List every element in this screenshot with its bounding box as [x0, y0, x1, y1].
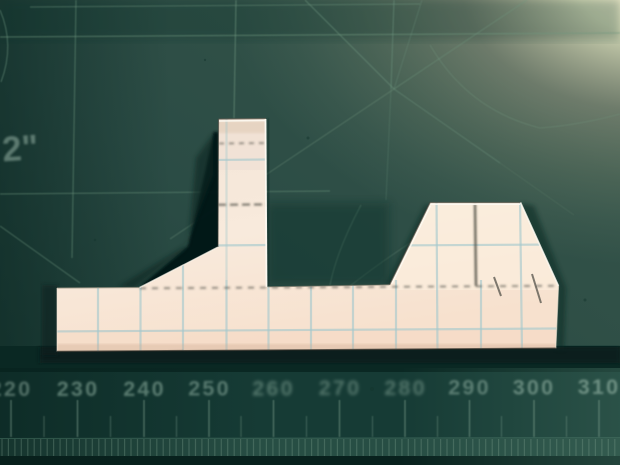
svg-text:270: 270 — [319, 376, 361, 400]
svg-text:240: 240 — [123, 377, 165, 401]
svg-text:290: 290 — [448, 376, 490, 400]
svg-text:220: 220 — [0, 377, 32, 401]
svg-text:280: 280 — [384, 376, 426, 400]
svg-text:2": 2" — [1, 128, 40, 169]
svg-text:310: 310 — [578, 375, 620, 399]
svg-text:300: 300 — [513, 376, 555, 400]
svg-text:260: 260 — [252, 377, 294, 401]
svg-text:250: 250 — [188, 377, 230, 401]
svg-text:230: 230 — [57, 377, 99, 401]
